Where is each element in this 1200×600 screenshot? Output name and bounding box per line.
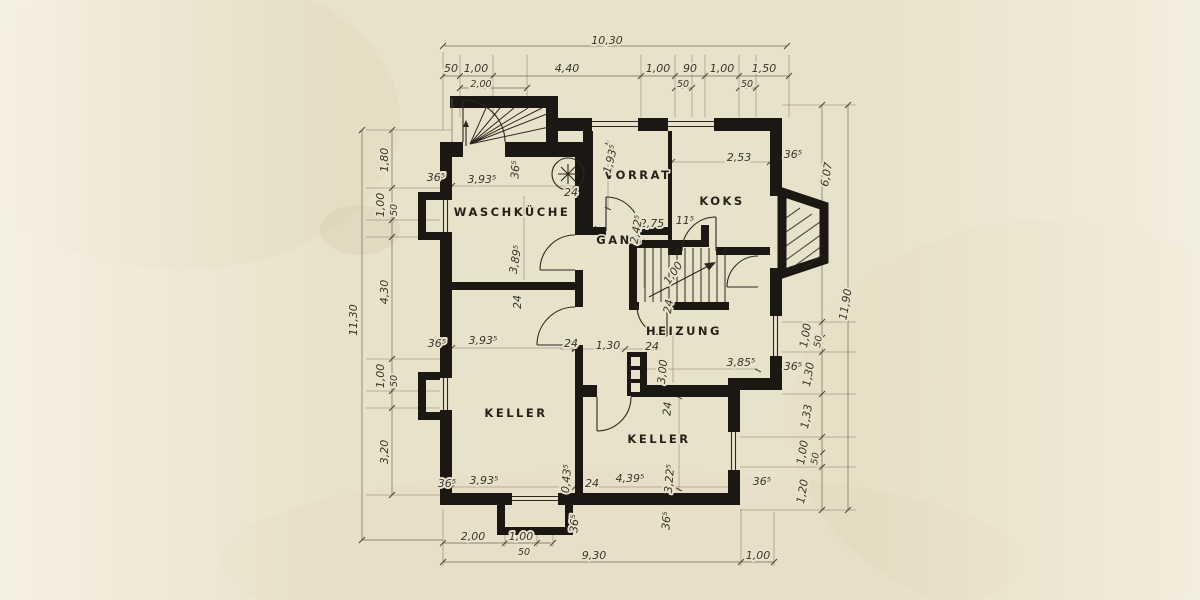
dim-i28: 24 [585, 477, 599, 490]
room-label-vorrat: VORRAT [604, 168, 671, 182]
floor-plan-sheet: WASCHKÜCHE VORRAT KOKS GANG HEIZUNG KELL… [0, 0, 1200, 600]
dim-bottom-s1: 2,00 [461, 530, 486, 543]
dim-left-s3: 4,30 [378, 280, 391, 305]
dim-i4: 24 [564, 186, 578, 199]
dim-i9: 36⁵ [784, 148, 802, 161]
dim-bottom-s2b: 50 [518, 547, 530, 558]
dim-i15: 24 [564, 337, 578, 350]
room-label-waschkueche: WASCHKÜCHE [454, 204, 570, 219]
dim-i25: 36⁵ [438, 477, 456, 490]
dim-bottom-right: 1,00 [746, 549, 771, 562]
paper-background [0, 0, 1200, 600]
dim-top-s2b: 2,00 [470, 79, 491, 90]
dim-i32: 36⁵ [659, 511, 674, 530]
dim-i14: 3,93⁵ [469, 334, 498, 347]
dim-i7: 11⁵ [676, 214, 694, 227]
dim-left-s1: 1,80 [378, 148, 391, 173]
dim-i2: 3,93⁵ [468, 173, 497, 186]
dim-left-s5: 3,20 [378, 440, 391, 465]
dim-i24: 3,22⁵ [662, 464, 677, 494]
dim-top-s5: 90 [683, 62, 697, 75]
dim-top-s7: 1,50 [752, 62, 777, 75]
dim-i22: 3,00 [655, 359, 670, 385]
dim-i26: 3,93⁵ [470, 474, 499, 487]
dim-i3: 36⁵ [508, 160, 523, 179]
dim-bottom-s2: 1,00 [509, 530, 534, 543]
dim-left-s4: 1,00 [374, 364, 387, 389]
dim-i17: 24 [645, 340, 659, 353]
dim-right-s5b: 50 [809, 452, 822, 466]
dim-top-s6b: 50 [741, 79, 753, 90]
dim-i30: 36⁵ [567, 514, 582, 533]
dim-left-s2b: 50 [389, 204, 400, 216]
dim-left-s2: 1,00 [374, 193, 387, 218]
dim-i23: 24 [660, 401, 674, 416]
dim-top-s1: 50 [444, 62, 458, 75]
chimney-flues [627, 352, 647, 396]
floor-plan: WASCHKÜCHE VORRAT KOKS GANG HEIZUNG KELL… [0, 0, 1200, 600]
dim-top-overall: 10,30 [591, 34, 623, 47]
dim-bottom-overall: 9,30 [582, 549, 607, 562]
dim-top-s6: 1,00 [710, 62, 735, 75]
dim-i8: 2,53 [727, 151, 752, 164]
room-label-koks: KOKS [699, 194, 744, 208]
room-label-keller-left: KELLER [484, 406, 547, 420]
dim-i29: 4,39⁵ [616, 472, 645, 485]
coal-chute-bay [782, 192, 824, 274]
dim-left-s4b: 50 [389, 375, 400, 387]
dim-left-overall: 11,30 [347, 304, 360, 336]
dim-i21: 36⁵ [784, 360, 802, 373]
dim-right-s2b: 50 [812, 335, 825, 349]
dim-i16: 1,30 [596, 339, 621, 352]
dim-top-s2: 1,00 [464, 62, 489, 75]
dim-i31: 36⁵ [753, 475, 771, 488]
room-label-keller-right: KELLER [627, 432, 690, 446]
dim-top-s4: 1,00 [646, 62, 671, 75]
dim-i12: 24 [511, 295, 524, 309]
dim-i27: 0,43⁵ [559, 464, 574, 494]
dim-i13: 36⁵ [428, 337, 446, 350]
dim-i1: 36⁵ [427, 171, 445, 184]
dim-top-s4b: 50 [677, 79, 689, 90]
dim-i19: 24 [661, 298, 676, 314]
room-label-heizung: HEIZUNG [646, 324, 722, 338]
dim-top-s3: 4,40 [555, 62, 580, 75]
dim-i20: 3,85⁵ [727, 356, 756, 369]
